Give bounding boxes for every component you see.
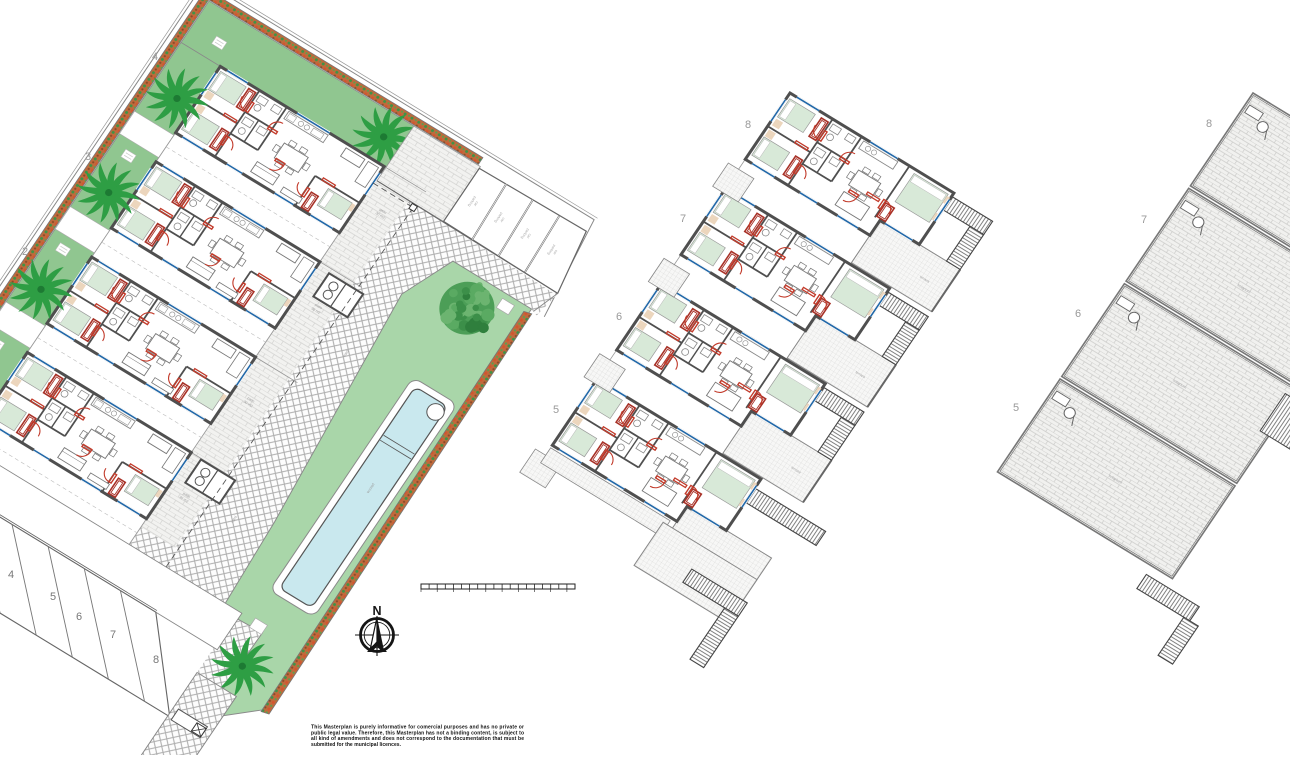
- svg-text:4: 4: [152, 51, 158, 63]
- svg-text:6: 6: [616, 311, 622, 323]
- svg-text:6: 6: [1075, 308, 1081, 320]
- svg-text:3: 3: [85, 151, 91, 163]
- svg-text:6: 6: [76, 611, 82, 623]
- svg-text:7: 7: [1141, 214, 1147, 226]
- svg-text:submitted for the municipal li: submitted for the municipal licences.: [311, 742, 402, 748]
- svg-text:5: 5: [553, 404, 559, 416]
- svg-text:N: N: [372, 604, 381, 618]
- svg-text:8: 8: [1206, 118, 1212, 130]
- svg-text:8: 8: [153, 654, 159, 666]
- svg-text:4: 4: [8, 569, 14, 581]
- svg-text:7: 7: [680, 213, 686, 225]
- svg-text:5: 5: [50, 591, 56, 603]
- svg-text:8: 8: [745, 119, 751, 131]
- svg-text:2: 2: [22, 246, 28, 258]
- svg-text:7: 7: [110, 629, 116, 641]
- svg-text:5: 5: [1013, 402, 1019, 414]
